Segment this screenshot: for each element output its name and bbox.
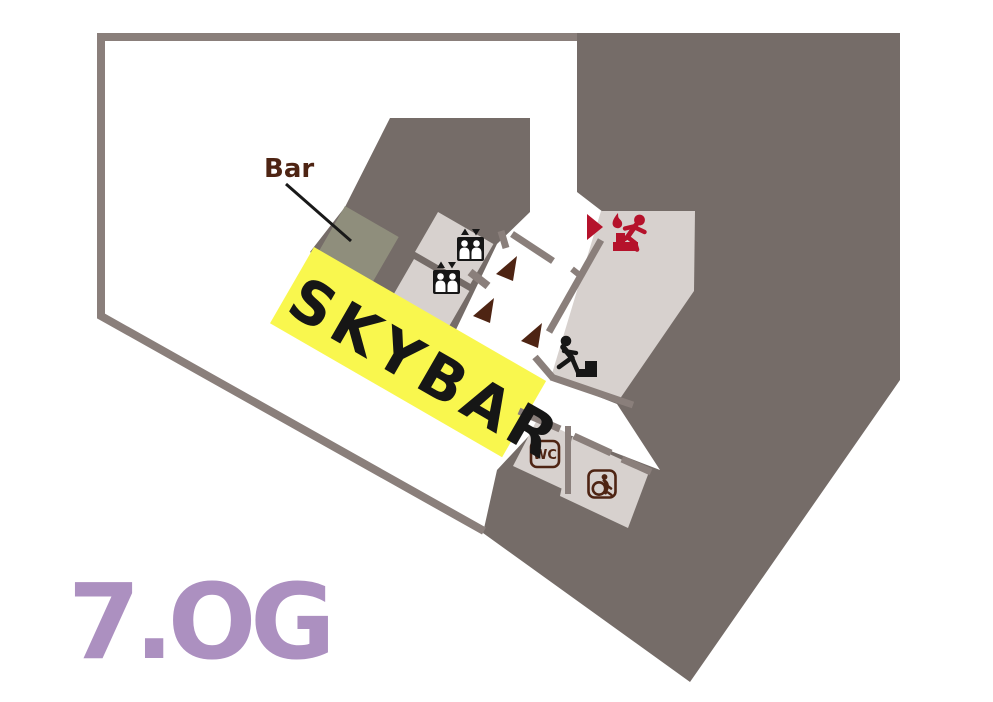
lobby-corridor-wall — [512, 234, 553, 261]
core-door-jamb — [501, 231, 506, 248]
stairwell-west-wall-stub — [535, 357, 553, 378]
door-direction-triangle — [496, 256, 517, 281]
building-footprint — [483, 33, 900, 682]
door-direction-triangle — [521, 323, 542, 348]
floor-plan-page: WC Bar SKYBAR 7.OG — [0, 0, 993, 702]
floor-label: 7.OG — [68, 561, 330, 683]
door-direction-triangle — [473, 298, 494, 323]
bar-label: Bar — [264, 154, 314, 184]
floor-plan-canvas: WC Bar SKYBAR 7.OG — [0, 0, 993, 702]
